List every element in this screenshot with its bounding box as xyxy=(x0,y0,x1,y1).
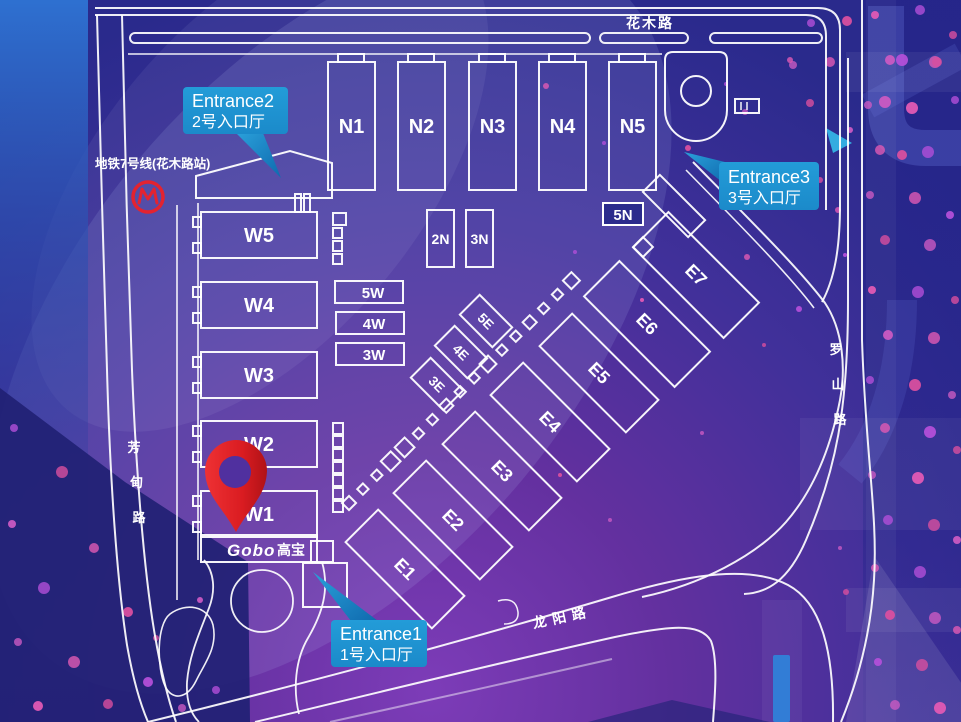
svg-text:W5: W5 xyxy=(244,225,274,247)
svg-text:路: 路 xyxy=(132,510,146,525)
svg-text:甸: 甸 xyxy=(129,475,143,490)
svg-text:N2: N2 xyxy=(409,116,435,138)
svg-text:N5: N5 xyxy=(620,116,646,138)
brand-gobo: Gobo xyxy=(227,541,275,560)
entrance3-label-cn: 3号入口厅 xyxy=(728,189,801,207)
svg-text:5W: 5W xyxy=(362,285,385,302)
svg-text:路: 路 xyxy=(833,412,847,427)
venue-map: N1N2N3N4N5W5W4W3W2W1E1E2E3E4E5E6E73E4E5E… xyxy=(0,0,961,722)
label-5n-box: 5N xyxy=(603,203,643,225)
svg-text:2N: 2N xyxy=(432,231,450,247)
map-canvas: N1N2N3N4N5W5W4W3W2W1E1E2E3E4E5E6E73E4E5E… xyxy=(0,0,961,722)
blue-bar-decor xyxy=(773,655,790,722)
metro-line-label: 地铁7号线(花木路站) xyxy=(95,156,210,171)
background-decor xyxy=(0,0,961,722)
svg-text:3W: 3W xyxy=(363,347,386,364)
entrance1-label-en: Entrance1 xyxy=(340,624,422,644)
brand-gaobao: 高宝 xyxy=(277,542,305,558)
road-label-huamu: 花木路 xyxy=(626,15,674,31)
entrance2-label-cn: 2号入口厅 xyxy=(192,113,265,131)
brand-label: Gobo 高宝 xyxy=(227,541,305,560)
svg-text:3N: 3N xyxy=(471,231,489,247)
svg-text:4W: 4W xyxy=(363,316,386,333)
svg-text:W3: W3 xyxy=(244,365,274,387)
svg-text:罗: 罗 xyxy=(829,342,842,357)
entrance2-label-en: Entrance2 xyxy=(192,91,274,111)
svg-text:W4: W4 xyxy=(244,295,275,317)
svg-text:芳: 芳 xyxy=(127,440,140,455)
label-5n: 5N xyxy=(613,207,632,224)
svg-text:N1: N1 xyxy=(339,116,365,138)
svg-text:N4: N4 xyxy=(550,116,576,138)
svg-text:N3: N3 xyxy=(480,116,506,138)
entrance1-label-cn: 1号入口厅 xyxy=(340,646,413,664)
svg-text:山: 山 xyxy=(831,377,844,392)
entrance3-label-en: Entrance3 xyxy=(728,167,810,187)
